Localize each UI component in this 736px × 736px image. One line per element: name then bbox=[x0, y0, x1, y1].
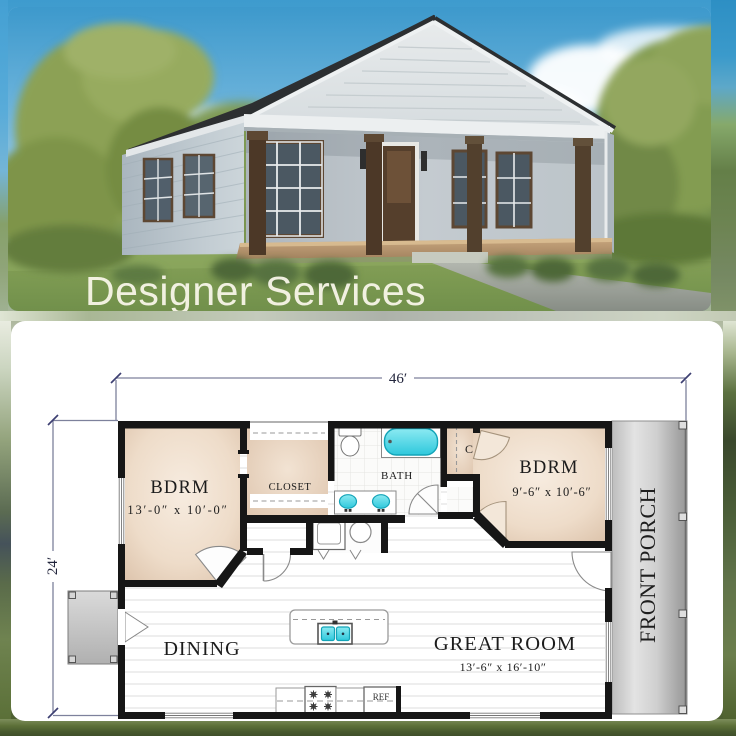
svg-text:BDRM: BDRM bbox=[519, 458, 578, 478]
svg-text:24′: 24′ bbox=[45, 557, 61, 575]
svg-text:BDRM: BDRM bbox=[150, 478, 209, 498]
svg-text:9′-6″ x 10′-6″: 9′-6″ x 10′-6″ bbox=[512, 485, 591, 499]
svg-text:GREAT ROOM: GREAT ROOM bbox=[434, 633, 576, 655]
svg-text:13′-0″ x 10′-0″: 13′-0″ x 10′-0″ bbox=[127, 503, 228, 517]
svg-text:FRONT PORCH: FRONT PORCH bbox=[635, 487, 660, 643]
svg-text:REF: REF bbox=[373, 692, 390, 702]
svg-text:CLOSET: CLOSET bbox=[269, 482, 312, 493]
svg-text:46′: 46′ bbox=[389, 371, 407, 387]
svg-text:C: C bbox=[465, 442, 473, 456]
svg-text:DINING: DINING bbox=[163, 638, 240, 660]
svg-text:13′-6″ x 16′-10″: 13′-6″ x 16′-10″ bbox=[460, 660, 547, 674]
svg-text:BATH: BATH bbox=[381, 470, 413, 482]
